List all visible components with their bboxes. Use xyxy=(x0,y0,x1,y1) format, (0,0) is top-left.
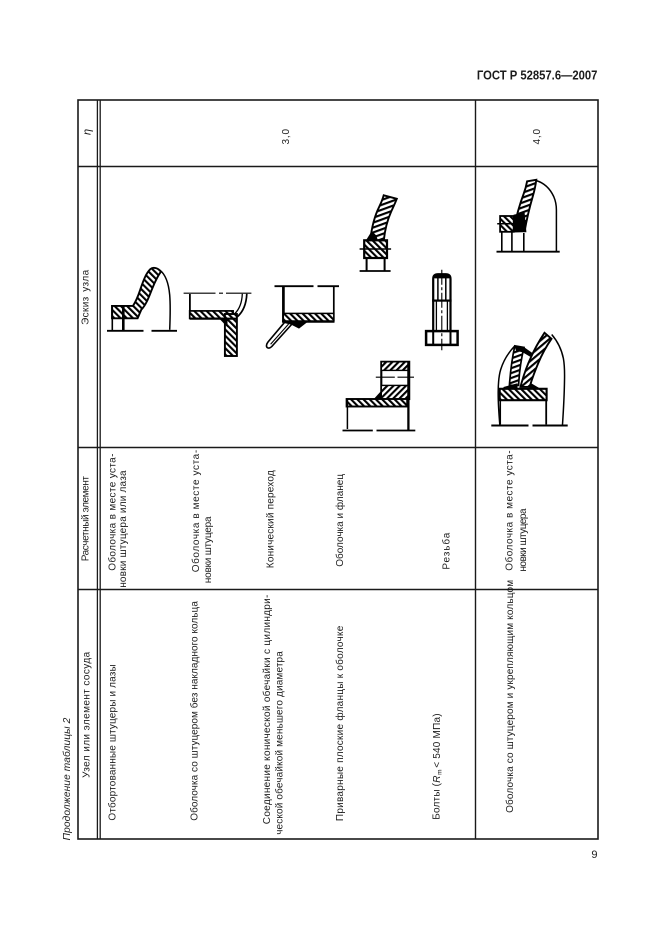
svg-text:Резьба: Резьба xyxy=(441,532,453,570)
svg-text:3,0: 3,0 xyxy=(281,128,292,144)
svg-text:новки штуцера: новки штуцера xyxy=(518,508,529,572)
svg-text:4,0: 4,0 xyxy=(532,128,543,144)
svg-text:Соединение конической обечайки: Соединение конической обечайки с цилиндр… xyxy=(261,594,273,824)
svg-text:η: η xyxy=(82,129,94,135)
svg-text:Оболочка в месте уста-: Оболочка в месте уста- xyxy=(190,449,202,572)
svg-text:Конический переход: Конический переход xyxy=(266,470,277,568)
svg-text:Приварные плоские фланцы к обо: Приварные плоские фланцы к оболочке xyxy=(334,625,346,821)
svg-text:Оболочка со штуцером без накла: Оболочка со штуцером без накладного коль… xyxy=(189,601,201,821)
svg-text:Оболочка со штуцером и укрепля: Оболочка со штуцером и укрепляющим кольц… xyxy=(504,580,516,813)
svg-text:Оболочка в месте уста-: Оболочка в месте уста- xyxy=(504,450,516,571)
svg-text:новки штуцера: новки штуцера xyxy=(203,516,214,583)
svg-text:Оболочка и фланец: Оболочка и фланец xyxy=(334,474,346,567)
svg-text:Отбортованные штуцеры и лазы: Отбортованные штуцеры и лазы xyxy=(106,664,118,820)
svg-text:Расчетный элемент: Расчетный элемент xyxy=(81,476,92,562)
svg-text:ГОСТ Р 52857.6—2007: ГОСТ Р 52857.6—2007 xyxy=(477,69,598,83)
svg-text:ческой обечайкой меньшего диам: ческой обечайкой меньшего диаметра xyxy=(274,651,286,835)
svg-text:Узел или элемент сосуда: Узел или элемент сосуда xyxy=(82,651,93,777)
svg-text:новки штуцера или лаза: новки штуцера или лаза xyxy=(118,470,129,588)
svg-text:9: 9 xyxy=(591,849,597,861)
svg-text:Оболочка в месте уста-: Оболочка в месте уста- xyxy=(107,453,119,571)
svg-text:Продолжение таблицы 2: Продолжение таблицы 2 xyxy=(61,717,73,840)
svg-text:Эскиз узла: Эскиз узла xyxy=(81,269,92,324)
svg-text:Болты (Rm< 540 МПа): Болты (Rm< 540 МПа) xyxy=(432,713,444,820)
